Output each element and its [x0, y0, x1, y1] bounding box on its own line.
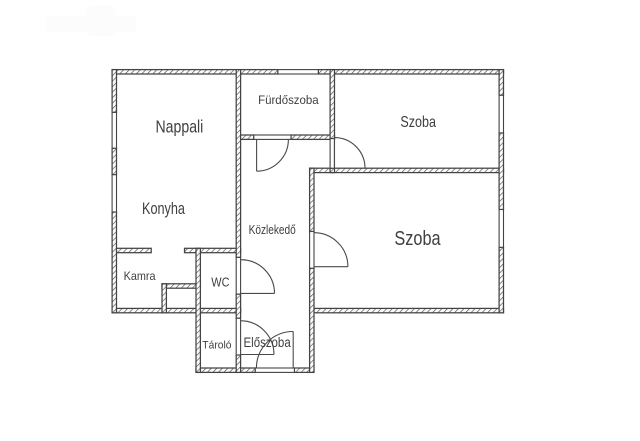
svg-text:Konyha: Konyha: [142, 199, 185, 218]
svg-text:Nappali: Nappali: [156, 117, 204, 137]
svg-text:Közlekedő: Közlekedő: [249, 222, 296, 237]
svg-text:Szoba: Szoba: [394, 228, 441, 250]
svg-text:Fürdőszoba: Fürdőszoba: [258, 93, 319, 107]
svg-text:Kamra: Kamra: [124, 269, 156, 283]
svg-text:WC: WC: [211, 276, 229, 290]
svg-text:Tároló: Tároló: [202, 339, 231, 351]
svg-text:Előszoba: Előszoba: [244, 335, 292, 350]
svg-text:Szoba: Szoba: [400, 113, 436, 131]
